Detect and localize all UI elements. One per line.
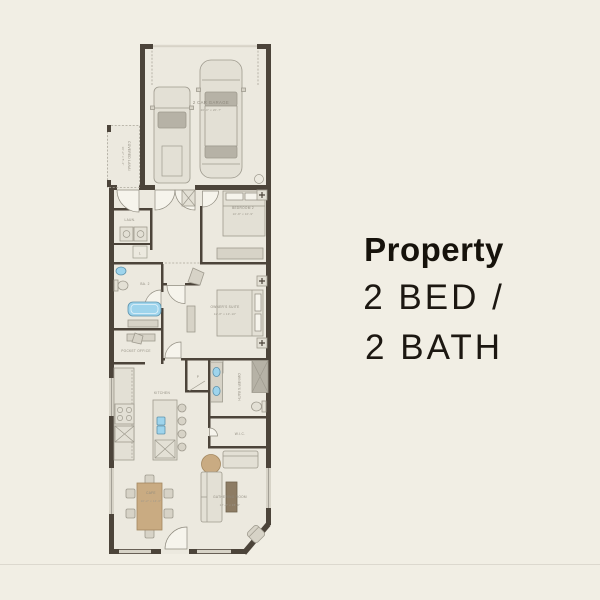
water-heater-closet [182, 190, 195, 206]
owners-suite-label: OWNER'S SUITE [210, 305, 239, 309]
floorplan-drawing: COVERED LANAI 10'-2" x 5'-4" [105, 40, 275, 558]
kitchen-island [153, 400, 186, 460]
floorplan: COVERED LANAI 10'-2" x 5'-4" [105, 40, 275, 558]
room-bedroom-2: BEDROOM 2 10'-8" x 10'-9" [217, 191, 265, 259]
property-title: Property [328, 232, 540, 268]
property-info: Property 2 BED / 2 BATH [328, 232, 540, 367]
gathering-label: GATHERING ROOM [213, 495, 247, 499]
covered-lanai-label: COVERED LANAI [127, 141, 131, 171]
laundry-label: LAUN. [125, 218, 136, 222]
linen-label: L [139, 252, 141, 256]
toilet-icon [114, 280, 128, 291]
pantry-label: P [197, 375, 199, 379]
property-card: COVERED LANAI 10'-2" x 5'-4" [0, 0, 600, 600]
vanity-sink-icon-2 [213, 386, 220, 395]
stool-icon [178, 404, 186, 412]
kitchen-sink-icon [157, 417, 165, 425]
owners-suite-dims: 12'-8" x 13'-10" [214, 312, 237, 316]
toilet-icon-2 [252, 401, 267, 412]
cafe-dims: 10'-2" x 14'-6" [141, 499, 162, 503]
wic-label: W.I.C. [235, 432, 245, 436]
bath-2-label: BA. 2 [140, 282, 149, 286]
shower-icon [252, 361, 268, 393]
owners-bath-label: OWNER'S BATH [237, 373, 241, 401]
room-wic: W.I.C. [235, 432, 245, 436]
washer-icon [120, 227, 133, 241]
bedroom-2-dims: 10'-8" x 10'-9" [233, 212, 254, 216]
dryer-icon [134, 227, 147, 241]
vanity-sink-icon [213, 367, 220, 376]
loveseat-icon [223, 451, 258, 468]
bath-count: 2 BATH [328, 329, 540, 368]
garage-dims: 20'-0" x 20'-7" [201, 108, 222, 112]
cafe-label: CAFE [146, 491, 156, 495]
garage-label: 2 CAR GARAGE [193, 100, 229, 105]
kitchen-label: KITCHEN [154, 391, 170, 395]
round-table-icon [202, 455, 221, 474]
car-icon [197, 60, 246, 178]
bed-count: 2 BED / [328, 279, 540, 318]
covered-lanai-dims: 10'-2" x 5'-4" [121, 147, 125, 166]
dresser-icon [217, 248, 263, 259]
bedroom-2-label: BEDROOM 2 [232, 206, 254, 210]
pocket-office-label: POCKET OFFICE [121, 349, 151, 353]
truck-icon [151, 87, 194, 183]
suite-dresser-icon [187, 306, 195, 332]
stove-icon [115, 404, 134, 424]
gathering-dims: 12'-8" x 15'-0" [220, 503, 241, 507]
sink-icon [116, 267, 126, 275]
section-divider [0, 564, 600, 565]
